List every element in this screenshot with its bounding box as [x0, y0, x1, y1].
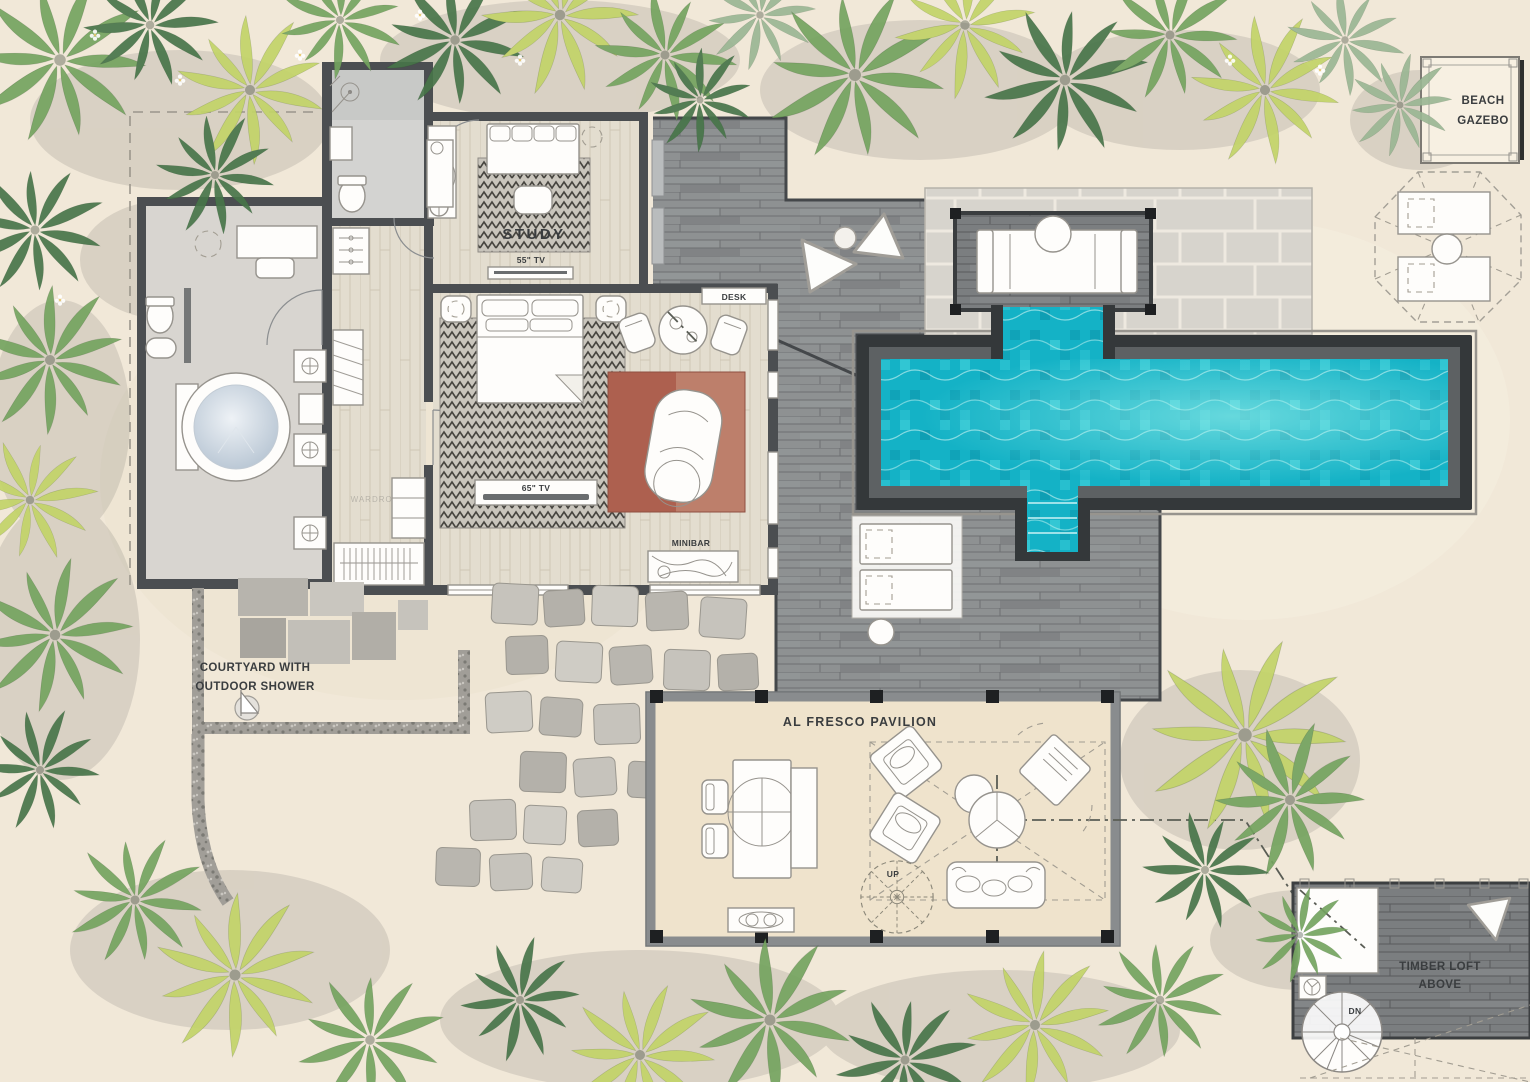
stair-up-label: UP — [887, 869, 899, 879]
stair-down-label: DN — [1349, 1006, 1362, 1016]
window — [768, 372, 778, 398]
ottoman — [514, 186, 552, 214]
desk-label: DESK — [722, 292, 747, 302]
gazebo-label-1: BEACH — [1462, 95, 1505, 107]
wardrobe-cabinet — [392, 478, 425, 538]
gazebo-label-2: GAZEBO — [1457, 115, 1509, 127]
daybed-round-pillow — [1035, 216, 1071, 252]
window — [768, 548, 778, 578]
dining-bench — [791, 768, 817, 868]
courtyard-wall — [192, 588, 204, 734]
floor-plan-drawing: STUDY 55" TV DESK 65" TV MINIBAR WARDROB… — [0, 0, 1530, 1082]
luggage-closet — [333, 228, 369, 274]
round-desk-table — [659, 306, 707, 354]
spiral-stair — [1302, 992, 1382, 1072]
gazebo-side-table — [1432, 234, 1462, 264]
stone-slab — [398, 600, 428, 630]
side-table — [868, 619, 894, 645]
sofa — [947, 862, 1045, 908]
window — [768, 300, 778, 350]
stone-slab — [310, 582, 364, 616]
loft-label-1: TIMBER LOFT — [1399, 961, 1481, 973]
courtyard-wall — [458, 650, 470, 734]
bidet — [146, 338, 176, 358]
study-label: STUDY — [502, 226, 565, 243]
sun-lounger — [860, 570, 952, 610]
gazebo-lounger — [1398, 192, 1490, 234]
courtyard-label-2: OUTDOOR SHOWER — [195, 681, 315, 693]
villa-floor-plan: STUDY 55" TV DESK 65" TV MINIBAR WARDROB… — [0, 0, 1530, 1082]
stone-slab — [238, 578, 308, 616]
pavilion-label: AL FRESCO PAVILION — [783, 715, 937, 729]
bedside-pouf — [441, 296, 471, 322]
ac-unit — [652, 140, 664, 196]
courtyard-label-1: COURTYARD WITH — [200, 662, 311, 674]
ac-unit — [652, 208, 664, 264]
stone-slab — [240, 618, 286, 658]
bathroom-counter — [330, 127, 352, 160]
pool-daybed-platform — [950, 208, 1156, 315]
stone-slab — [288, 620, 350, 664]
minibar-label: MINIBAR — [672, 538, 710, 548]
vanity-table — [237, 226, 317, 258]
courtyard-wall — [192, 722, 470, 734]
loft-label-2: ABOVE — [1419, 979, 1462, 991]
window — [768, 452, 778, 524]
stone-slab — [352, 612, 396, 660]
tv55-label: 55" TV — [517, 255, 546, 265]
study-daybed — [487, 124, 579, 174]
bedside-pouf — [596, 296, 626, 322]
round-cushion — [834, 227, 856, 249]
tv65-label: 65" TV — [522, 483, 551, 493]
sun-lounger — [860, 524, 952, 564]
